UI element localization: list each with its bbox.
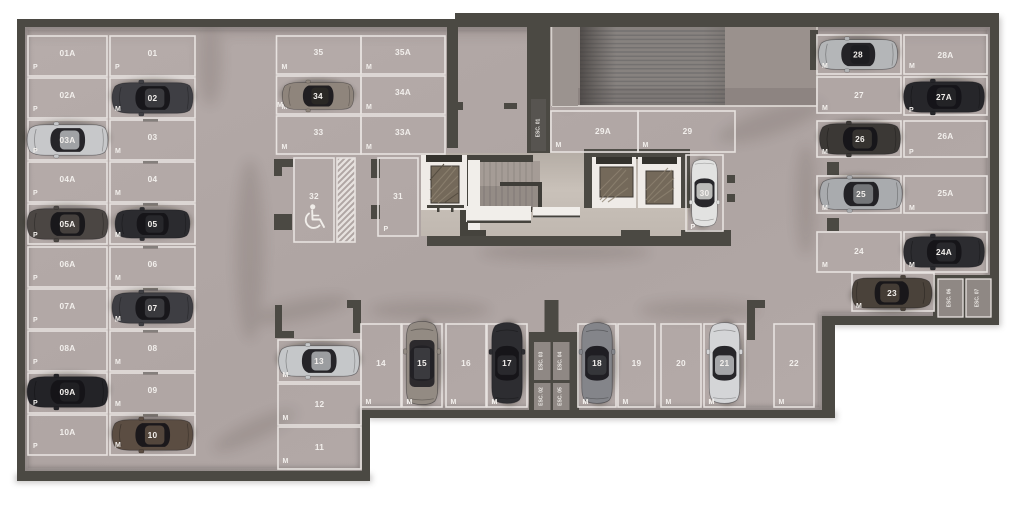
svg-text:ESC. 06: ESC. 06 (947, 288, 953, 307)
svg-text:M: M (643, 142, 649, 149)
svg-text:M: M (451, 399, 457, 406)
svg-text:ESC. 04: ESC. 04 (558, 351, 564, 370)
svg-text:29A: 29A (595, 126, 611, 136)
svg-text:M: M (366, 104, 372, 111)
svg-text:07: 07 (148, 303, 158, 313)
svg-text:M: M (115, 190, 121, 197)
svg-text:28A: 28A (937, 50, 953, 60)
svg-text:28: 28 (853, 50, 863, 60)
svg-text:M: M (779, 399, 785, 406)
svg-text:P: P (384, 226, 389, 233)
svg-text:05: 05 (148, 219, 158, 229)
svg-text:23: 23 (887, 288, 897, 298)
svg-text:M: M (822, 63, 828, 70)
svg-text:P: P (33, 275, 38, 282)
svg-text:34A: 34A (395, 87, 411, 97)
svg-text:M: M (666, 399, 672, 406)
svg-text:P: P (115, 64, 120, 71)
svg-text:P: P (909, 107, 914, 114)
svg-text:P: P (33, 232, 38, 239)
svg-text:M: M (709, 399, 715, 406)
svg-text:M: M (115, 401, 121, 408)
svg-text:M: M (366, 64, 372, 71)
svg-text:06A: 06A (59, 259, 75, 269)
svg-text:M: M (856, 303, 862, 310)
svg-text:26A: 26A (937, 131, 953, 141)
svg-text:30: 30 (700, 188, 710, 198)
svg-text:06: 06 (148, 259, 158, 269)
svg-text:32: 32 (309, 191, 319, 201)
svg-text:P: P (909, 149, 914, 156)
svg-text:05A: 05A (59, 219, 75, 229)
svg-text:22: 22 (789, 358, 799, 368)
svg-text:17: 17 (502, 358, 512, 368)
svg-text:M: M (909, 262, 915, 269)
svg-text:P: P (33, 400, 38, 407)
svg-text:15: 15 (417, 358, 427, 368)
svg-text:M: M (115, 106, 121, 113)
svg-text:P: P (33, 106, 38, 113)
svg-text:M: M (282, 144, 288, 151)
svg-text:14: 14 (376, 358, 386, 368)
svg-text:M: M (822, 205, 828, 212)
svg-text:09: 09 (148, 385, 158, 395)
svg-text:M: M (115, 316, 121, 323)
svg-text:08A: 08A (59, 343, 75, 353)
svg-text:M: M (822, 105, 828, 112)
svg-text:M: M (283, 458, 289, 465)
svg-text:M: M (115, 232, 121, 239)
svg-text:M: M (115, 359, 121, 366)
svg-text:M: M (556, 142, 562, 149)
svg-text:P: P (33, 443, 38, 450)
svg-text:21: 21 (720, 358, 730, 368)
svg-text:01: 01 (148, 48, 158, 58)
svg-text:19: 19 (632, 358, 642, 368)
svg-text:P: P (33, 148, 38, 155)
svg-text:M: M (283, 372, 289, 379)
svg-text:27A: 27A (936, 92, 952, 102)
svg-text:M: M (583, 399, 589, 406)
svg-text:M: M (822, 262, 828, 269)
svg-text:M: M (909, 63, 915, 70)
svg-text:M: M (909, 205, 915, 212)
svg-text:M: M (407, 399, 413, 406)
svg-text:34: 34 (313, 91, 323, 101)
svg-text:02A: 02A (59, 90, 75, 100)
svg-text:08: 08 (148, 343, 158, 353)
svg-text:01A: 01A (59, 48, 75, 58)
svg-text:31: 31 (393, 191, 403, 201)
svg-text:35A: 35A (395, 47, 411, 57)
svg-text:ESC. 01: ESC. 01 (536, 118, 542, 137)
svg-text:02: 02 (148, 93, 158, 103)
svg-text:33: 33 (314, 127, 324, 137)
svg-text:M: M (277, 102, 283, 109)
svg-text:35: 35 (314, 47, 324, 57)
svg-text:P: P (33, 359, 38, 366)
svg-text:ESC. 03: ESC. 03 (539, 351, 545, 370)
svg-text:M: M (282, 64, 288, 71)
svg-text:25A: 25A (937, 188, 953, 198)
svg-text:M: M (115, 148, 121, 155)
svg-text:M: M (366, 399, 372, 406)
svg-text:29: 29 (683, 126, 693, 136)
svg-text:24: 24 (854, 246, 864, 256)
svg-text:04: 04 (148, 174, 158, 184)
svg-text:M: M (115, 442, 121, 449)
svg-text:ESC. 02: ESC. 02 (539, 387, 545, 406)
svg-text:M: M (366, 144, 372, 151)
svg-text:26: 26 (855, 134, 865, 144)
svg-text:11: 11 (315, 442, 324, 452)
svg-text:M: M (623, 399, 629, 406)
svg-text:P: P (33, 64, 38, 71)
svg-text:33A: 33A (395, 127, 411, 137)
svg-text:27: 27 (854, 90, 864, 100)
svg-text:M: M (822, 149, 828, 156)
svg-text:04A: 04A (59, 174, 75, 184)
svg-text:18: 18 (592, 358, 602, 368)
svg-text:13: 13 (314, 356, 324, 366)
svg-text:M: M (283, 415, 289, 422)
svg-text:P: P (33, 317, 38, 324)
svg-text:07A: 07A (59, 301, 75, 311)
svg-text:ESC. 05: ESC. 05 (558, 387, 564, 406)
svg-text:25: 25 (856, 189, 866, 199)
svg-text:M: M (115, 275, 121, 282)
svg-text:03: 03 (148, 132, 158, 142)
svg-text:16: 16 (461, 358, 471, 368)
svg-text:P: P (33, 190, 38, 197)
svg-text:09A: 09A (59, 387, 75, 397)
svg-text:M: M (492, 399, 498, 406)
svg-text:03A: 03A (59, 135, 75, 145)
svg-text:ESC. 07: ESC. 07 (975, 288, 981, 307)
svg-text:P: P (691, 224, 696, 231)
svg-text:12: 12 (315, 399, 325, 409)
svg-text:10A: 10A (59, 427, 75, 437)
svg-text:24A: 24A (936, 247, 952, 257)
svg-text:20: 20 (676, 358, 686, 368)
svg-text:10: 10 (148, 430, 158, 440)
